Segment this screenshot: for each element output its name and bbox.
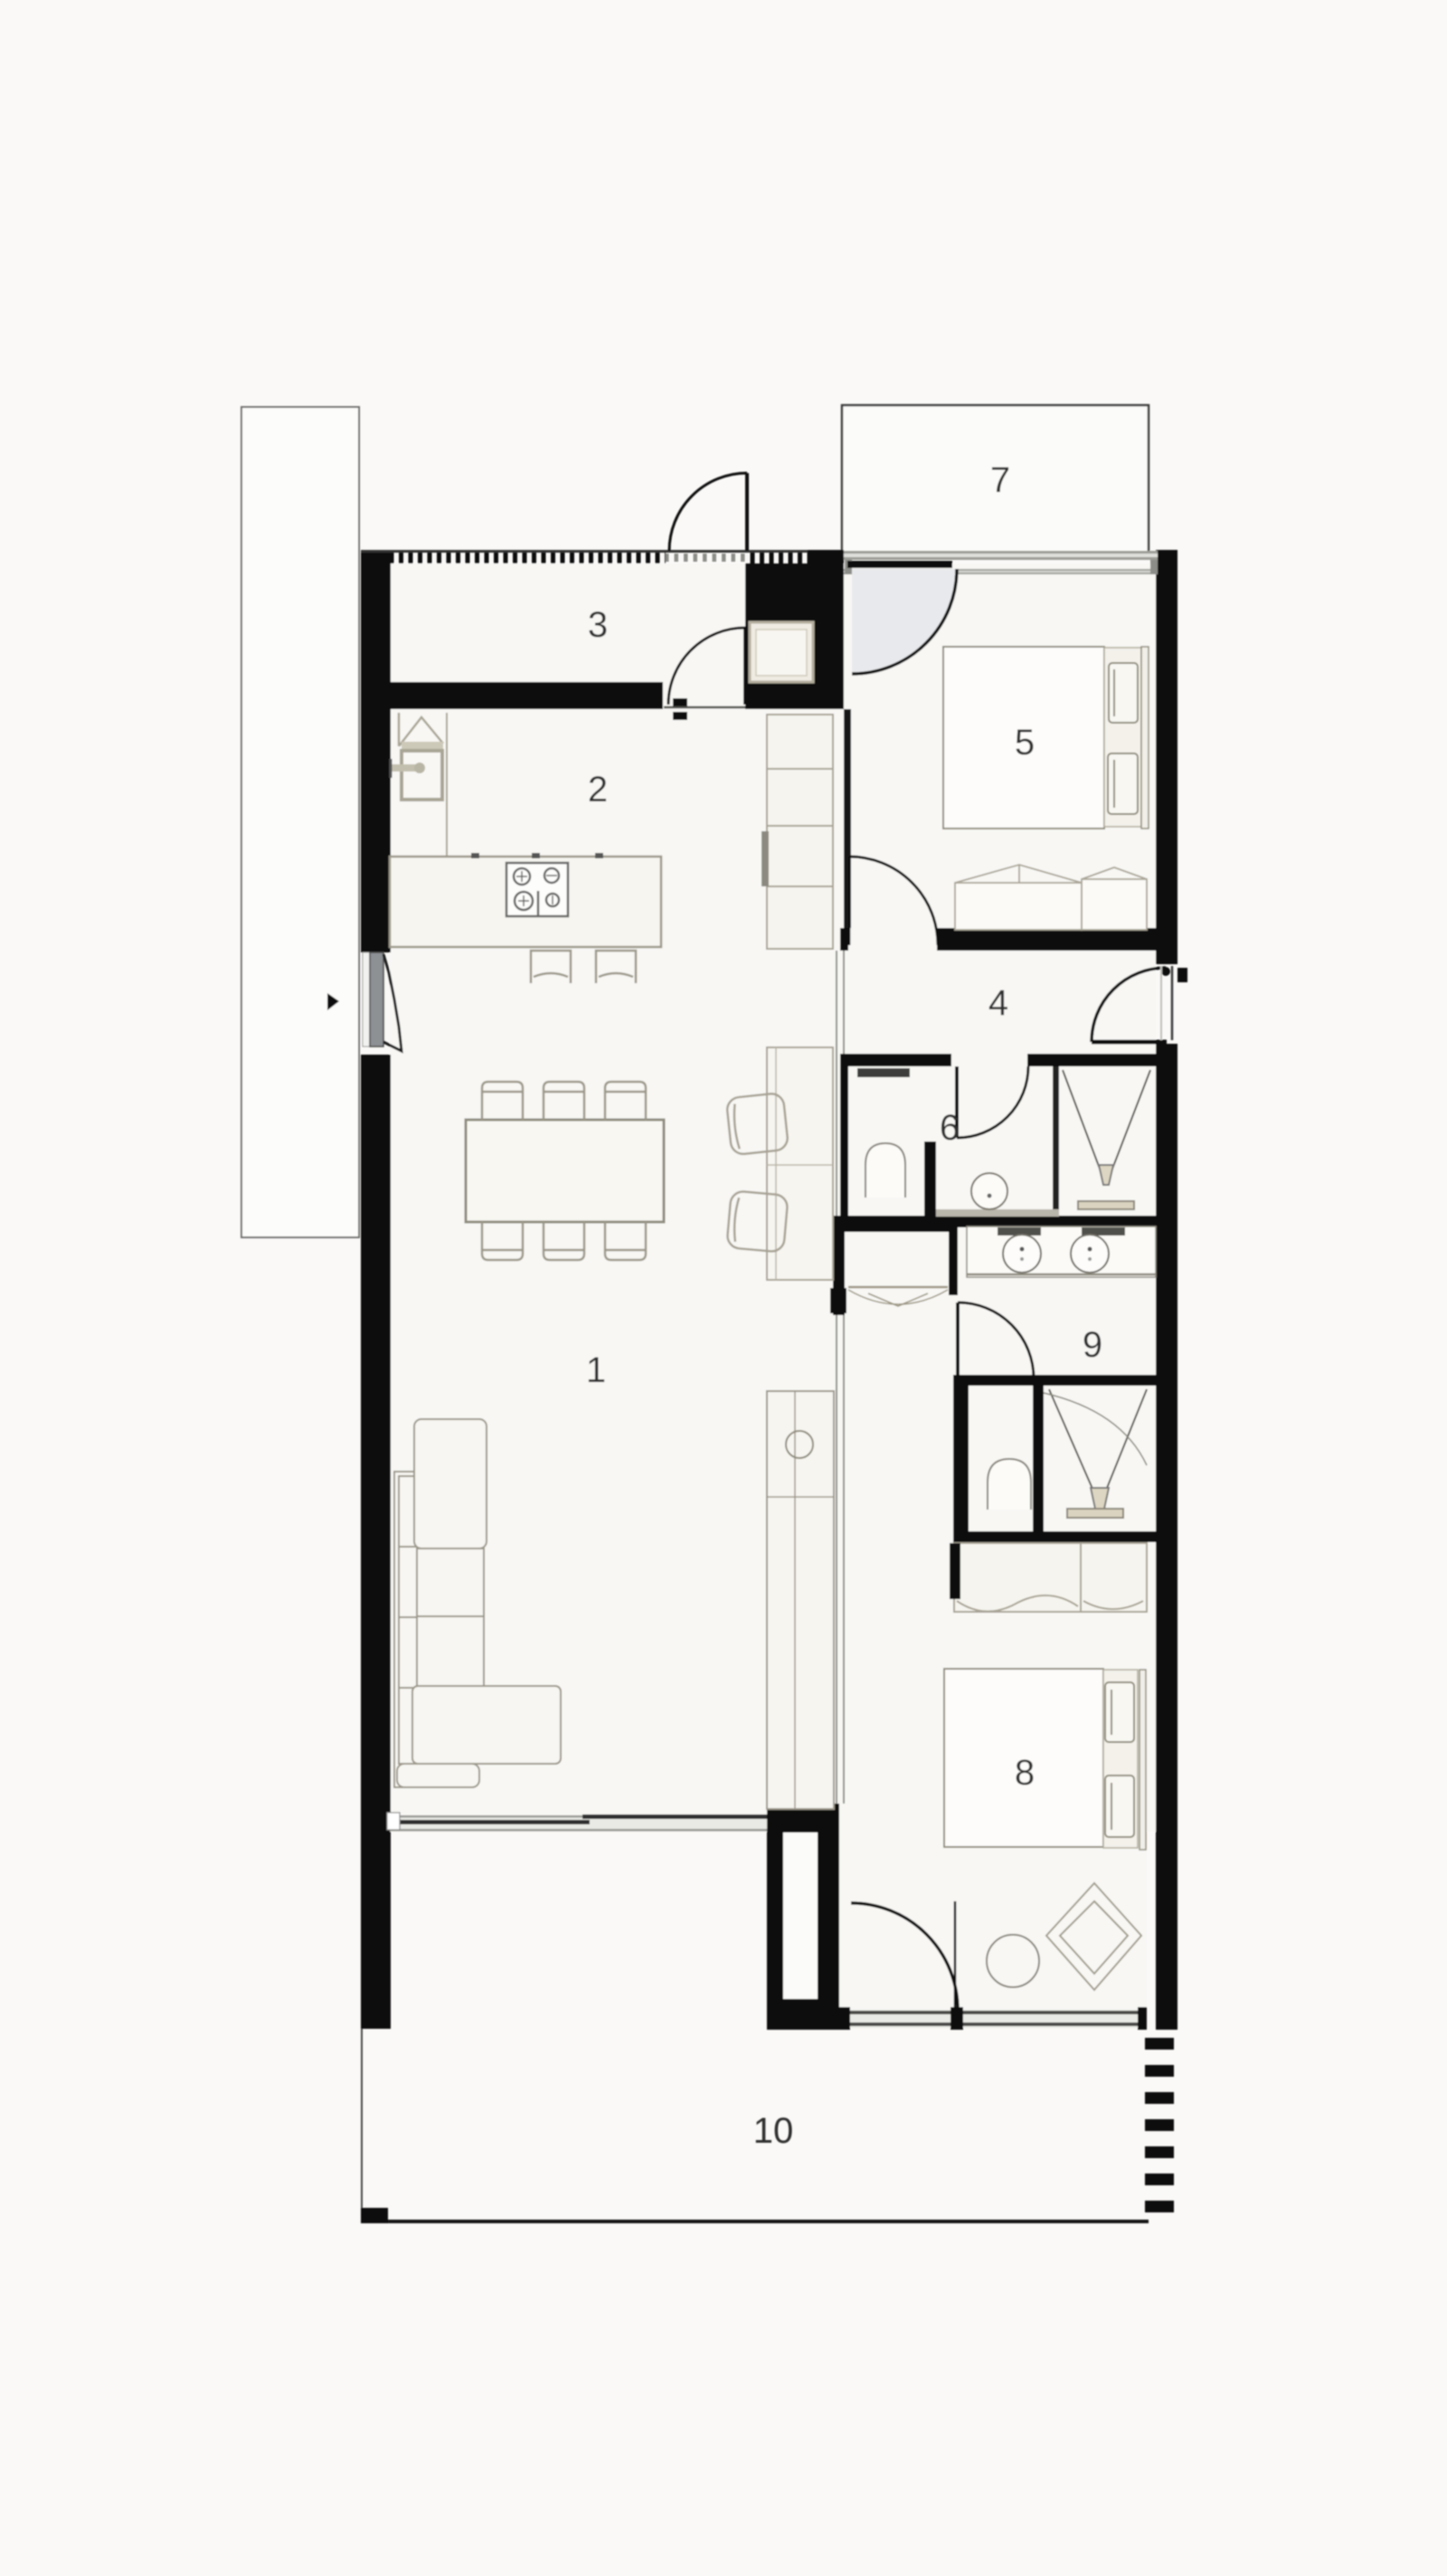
svg-text:5: 5 [1015,723,1035,762]
svg-text:2: 2 [588,770,608,810]
svg-text:3: 3 [588,605,608,645]
svg-text:8: 8 [1015,1753,1035,1793]
svg-text:9: 9 [1083,1325,1102,1365]
svg-text:4: 4 [988,983,1008,1023]
svg-text:10: 10 [753,2111,794,2151]
svg-text:7: 7 [990,460,1010,500]
svg-text:6: 6 [940,1108,960,1148]
svg-text:1: 1 [586,1350,606,1390]
